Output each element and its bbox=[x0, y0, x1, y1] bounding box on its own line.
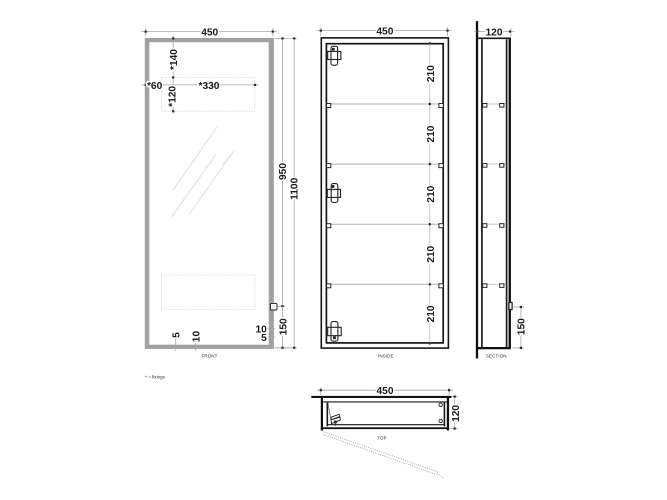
svg-text:150: 150 bbox=[279, 318, 290, 335]
svg-text:*140: *140 bbox=[169, 49, 180, 70]
svg-text:5: 5 bbox=[261, 333, 267, 344]
svg-text:210: 210 bbox=[426, 245, 437, 262]
svg-text:FRONT: FRONT bbox=[202, 354, 218, 359]
svg-text:10: 10 bbox=[191, 331, 202, 343]
svg-text:450: 450 bbox=[201, 27, 218, 38]
svg-text:*330: *330 bbox=[199, 81, 220, 92]
svg-text:210: 210 bbox=[426, 125, 437, 142]
svg-text:210: 210 bbox=[426, 65, 437, 82]
svg-text:450: 450 bbox=[376, 26, 393, 37]
svg-text:*120: *120 bbox=[167, 86, 178, 107]
svg-text:950: 950 bbox=[278, 163, 289, 180]
svg-text:210: 210 bbox=[426, 305, 437, 322]
svg-text:5: 5 bbox=[171, 332, 182, 338]
svg-text:TOP: TOP bbox=[377, 435, 386, 440]
svg-text:150: 150 bbox=[516, 318, 527, 335]
svg-text:450: 450 bbox=[377, 386, 394, 397]
svg-text:* = fixings: * = fixings bbox=[145, 374, 165, 379]
svg-text:120: 120 bbox=[486, 27, 503, 38]
svg-text:1100: 1100 bbox=[290, 177, 301, 199]
svg-text:SECTION: SECTION bbox=[486, 353, 507, 358]
svg-text:210: 210 bbox=[426, 185, 437, 202]
svg-text:*60: *60 bbox=[147, 81, 163, 92]
svg-text:120: 120 bbox=[451, 405, 462, 422]
svg-text:INSIDE: INSIDE bbox=[378, 353, 394, 358]
